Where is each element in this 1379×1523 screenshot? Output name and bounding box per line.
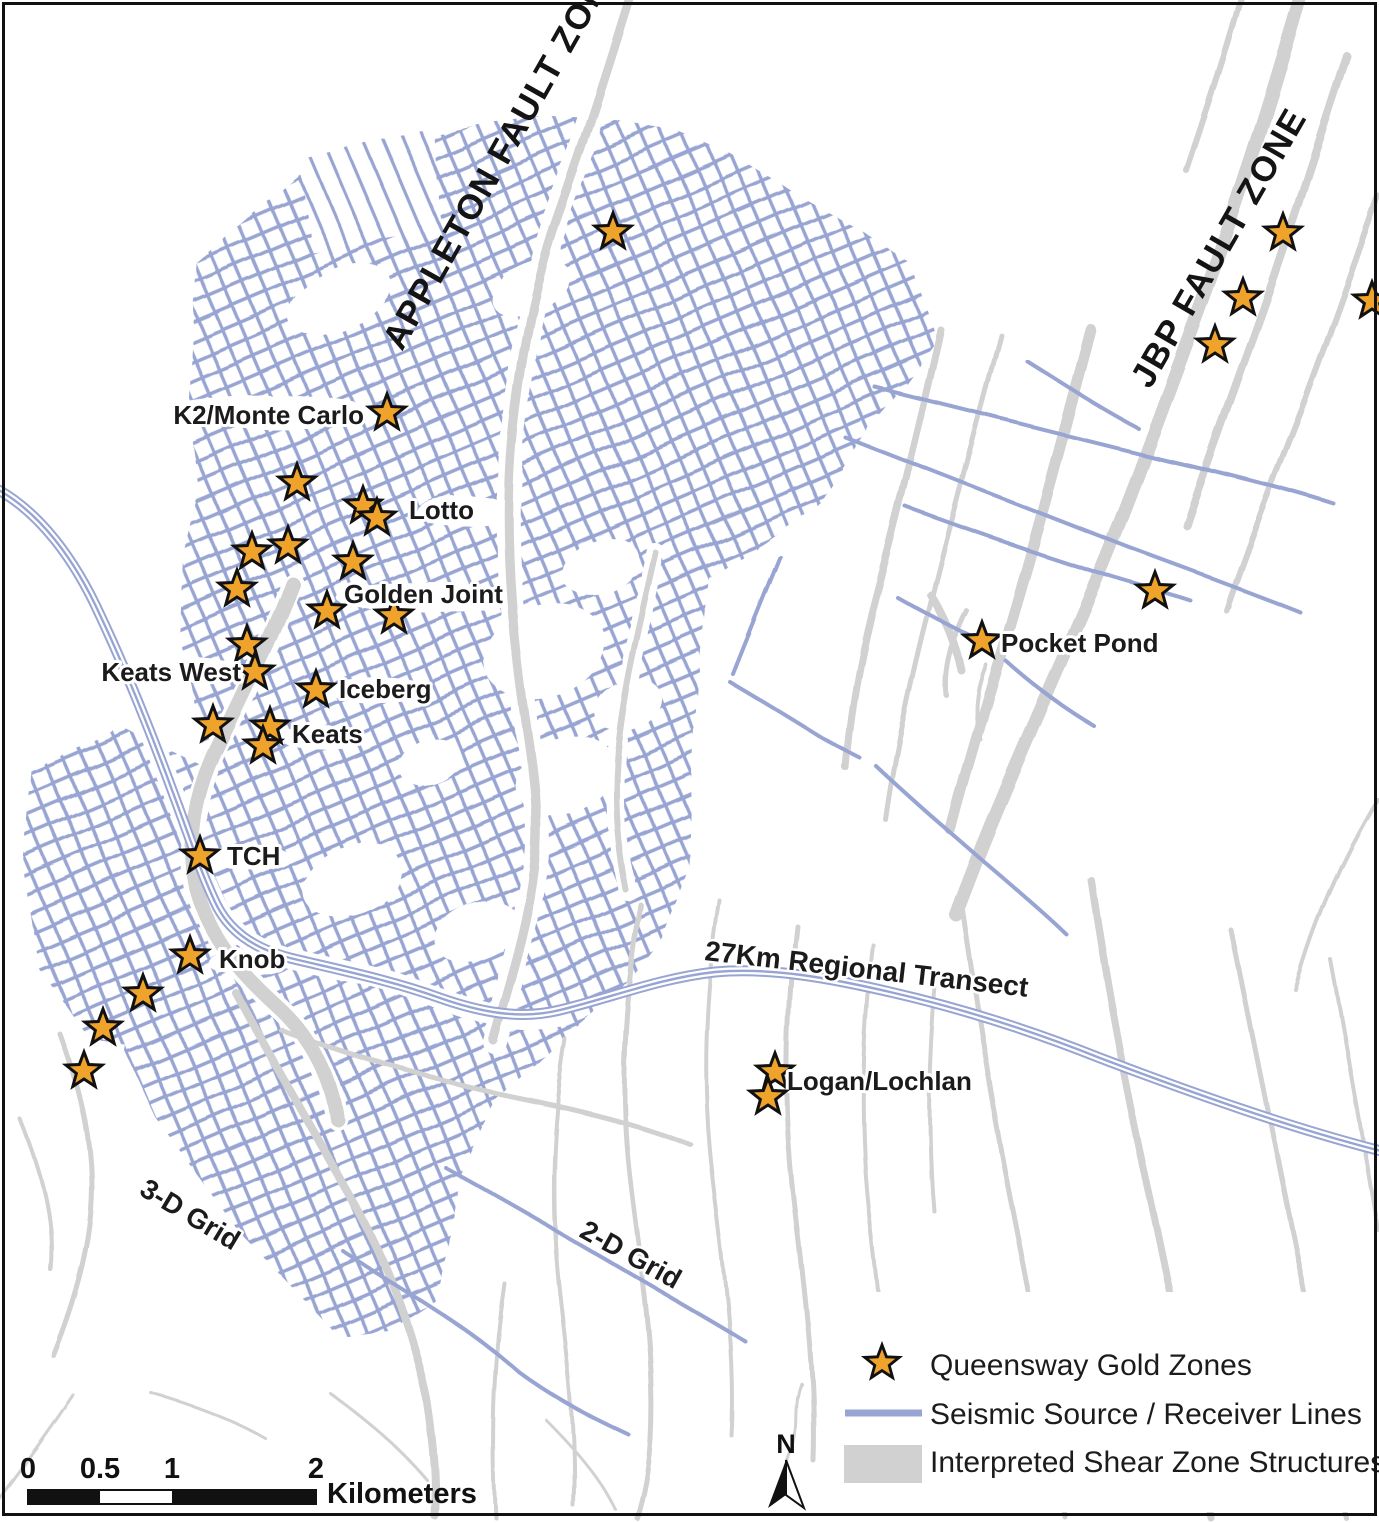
scale-tick-2: 2 [308,1453,324,1485]
legend-label-gold-zones: Queensway Gold Zones [930,1349,1252,1382]
scale-bar: 0 0.5 1 2 Kilometers [20,1453,477,1510]
gold-zone-star [1225,279,1261,313]
scale-unit-label: Kilometers [327,1478,477,1510]
scale-tick-1: 1 [164,1453,180,1485]
gold-zone-label: TCH [227,841,280,871]
gold-zone-star [1137,572,1173,606]
map-figure: APPLETON FAULT ZONEJBP FAULT ZONE 27Km R… [0,0,1379,1523]
gold-zone-star [1197,326,1233,360]
legend: Queensway Gold Zones Seismic Source / Re… [832,1292,1379,1512]
gold-zone-star [964,622,1000,656]
legend-label-shear-zones: Interpreted Shear Zone Structures [930,1446,1379,1479]
north-label: N [776,1429,796,1459]
north-arrow-icon: N [768,1429,804,1508]
gold-zone-label: Lotto [409,495,474,525]
gold-zone-label: K2/Monte Carlo [173,400,364,430]
legend-shear-zone-swatch [844,1445,922,1483]
scale-tick-0: 0 [20,1453,36,1485]
gold-zone-label: Pocket Pond [1001,628,1158,658]
gold-zone-label: Iceberg [339,674,432,704]
gold-zone-label: Keats [292,719,363,749]
grid-dash-patch [298,126,442,252]
scale-tick-05: 0.5 [80,1453,120,1485]
gold-zone-label: Knob [219,944,285,974]
area-label: 2-D Grid [575,1214,687,1295]
gold-zone-label: Logan/Lochlan [787,1066,972,1096]
legend-label-seismic-lines: Seismic Source / Receiver Lines [930,1398,1362,1431]
gold-zone-label: Golden Joint [344,579,503,609]
gold-zone-star [66,1052,102,1086]
gold-zone-label: Keats West [101,657,241,687]
